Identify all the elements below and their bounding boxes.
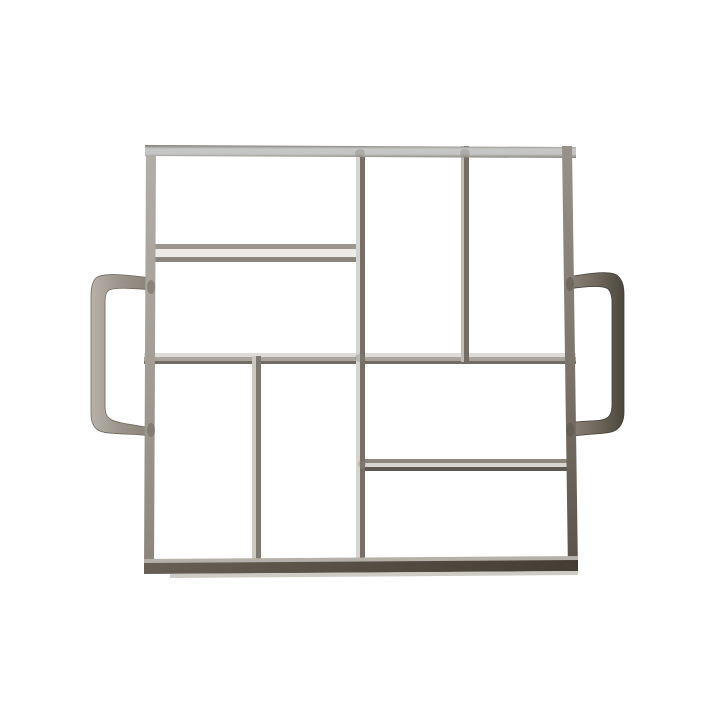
divider-h1-top-edge — [146, 244, 365, 249]
divider-h1-bottom-edge — [146, 257, 365, 262]
weld-mark-left-handle-top — [147, 280, 155, 294]
divider-h3-face — [358, 463, 576, 467]
right-handle — [568, 273, 624, 437]
weld-mark-right-handle-top — [566, 277, 574, 291]
product-photo-svg — [0, 0, 720, 720]
weld-mark-right-handle-bottom — [566, 423, 574, 437]
divider-h1-face — [146, 249, 365, 257]
divider-v2-light-edge — [461, 146, 464, 362]
frame-left-rail — [144, 145, 156, 572]
weld-mark-joint-h3 — [358, 460, 366, 468]
divider-v3-light-edge — [252, 356, 256, 570]
divider-v3-dark-edge — [256, 356, 261, 570]
weld-mark-left-handle-bottom — [147, 423, 155, 437]
weld-mark-joint-top-v1 — [355, 149, 365, 157]
divider-v2-dark-edge — [464, 146, 469, 362]
left-handle — [91, 275, 152, 436]
divider-h3-bottom-edge — [358, 467, 576, 471]
product-image — [0, 0, 720, 720]
weld-mark-joint-top-v2 — [460, 149, 470, 157]
divider-h3-top-edge — [358, 459, 576, 463]
weld-mark-joint-center — [355, 354, 365, 362]
